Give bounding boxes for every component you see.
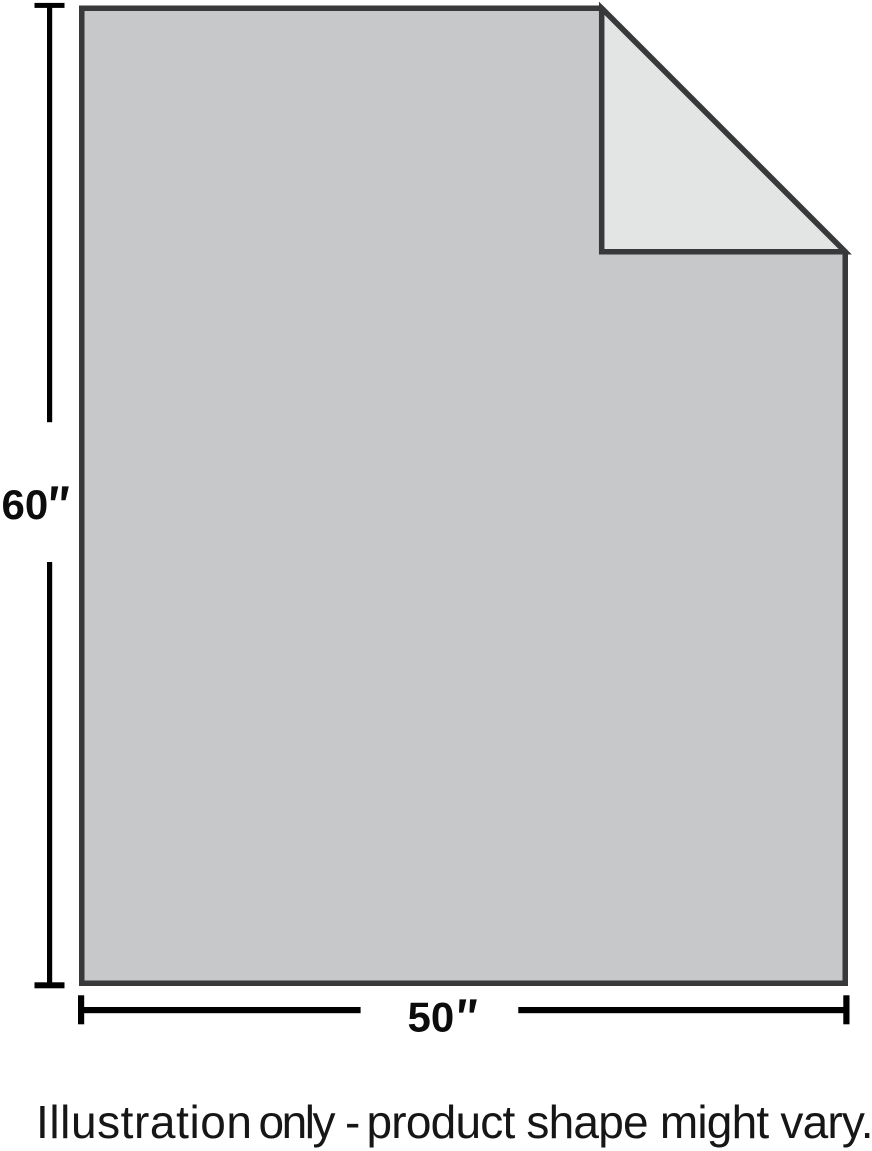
svg-text:-: - [345, 1096, 360, 1148]
svg-text:Illustration: Illustration [36, 1096, 252, 1148]
svg-text:product shape might vary.: product shape might vary. [367, 1096, 872, 1148]
svg-text:only: only [259, 1096, 336, 1148]
svg-text:50: 50 [408, 994, 455, 1041]
svg-text:60: 60 [2, 481, 49, 528]
